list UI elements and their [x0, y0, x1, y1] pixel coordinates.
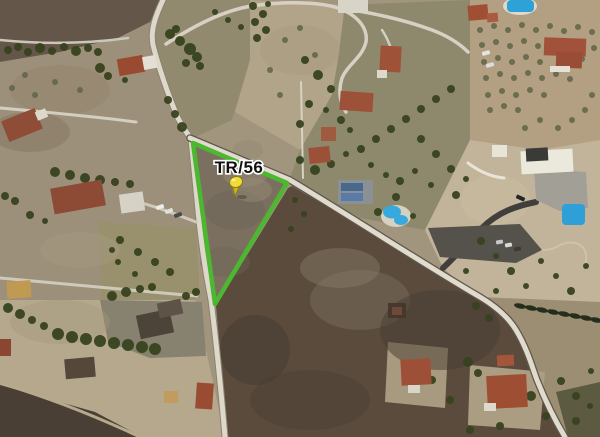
olive-tree [477, 27, 483, 33]
tree [392, 193, 400, 201]
tree [94, 335, 106, 347]
tree [115, 259, 121, 265]
tree [182, 59, 190, 67]
tree [40, 322, 48, 330]
olive-tree [497, 71, 503, 77]
olive-tree [567, 76, 573, 82]
tree [253, 34, 261, 42]
tree [583, 263, 589, 269]
building [164, 391, 178, 403]
tree [192, 52, 202, 62]
tree [357, 145, 365, 153]
tree [177, 122, 187, 132]
building [556, 52, 583, 69]
olive-tree [519, 22, 525, 28]
tree [50, 167, 60, 177]
olive-tree [509, 59, 515, 65]
tree [587, 403, 593, 409]
pool-north [507, 0, 534, 12]
tree [523, 283, 529, 289]
terrain-blotch [220, 315, 290, 385]
tree [296, 156, 304, 164]
olive-tree [491, 23, 497, 29]
tree [412, 168, 418, 174]
building [400, 358, 431, 386]
building [338, 0, 368, 13]
building [119, 191, 145, 213]
tree [463, 268, 469, 274]
tree [383, 172, 389, 178]
tree [134, 248, 142, 256]
olive-grove-northeast [470, 0, 600, 150]
tree [28, 316, 36, 324]
pushpin-highlight [232, 179, 236, 182]
building [526, 147, 549, 161]
building [550, 66, 570, 72]
tree [474, 369, 482, 377]
tree [472, 302, 480, 310]
tree [446, 396, 454, 404]
olive-tree [515, 107, 521, 113]
pushpin-shadow [237, 195, 247, 199]
tree [116, 236, 124, 244]
tree [136, 285, 144, 293]
olive-tree [561, 28, 567, 34]
olive-tree [522, 125, 528, 131]
tree [288, 226, 294, 232]
olive-tree [9, 85, 15, 91]
tree [136, 341, 148, 353]
parcel-label: TR/56 [215, 158, 264, 177]
tree [196, 62, 204, 70]
tree [149, 343, 161, 355]
olive-tree [22, 72, 28, 78]
olive-tree [501, 103, 507, 109]
olive-tree [297, 25, 303, 31]
building [379, 45, 401, 72]
tree [296, 120, 304, 128]
building [339, 91, 373, 112]
tree [26, 211, 34, 219]
tree [496, 422, 504, 430]
tree [15, 309, 25, 319]
tree [432, 95, 440, 103]
olive-tree [589, 92, 595, 98]
tree [553, 273, 559, 279]
tree [42, 218, 48, 224]
tree [225, 17, 231, 23]
tree [166, 268, 174, 276]
olive-tree [505, 27, 511, 33]
olive-tree [507, 43, 513, 49]
olive-tree [535, 43, 541, 49]
olive-tree [547, 23, 553, 29]
tree [84, 44, 92, 52]
tree [94, 48, 102, 56]
tree [466, 426, 474, 434]
tree [417, 135, 425, 143]
tree [107, 291, 117, 301]
building [341, 183, 363, 191]
tree [80, 333, 92, 345]
tree [132, 271, 138, 277]
terrain-blotch [300, 248, 380, 288]
tree [14, 43, 22, 51]
tree [71, 46, 81, 56]
tree [526, 391, 536, 401]
satellite-imagery: TR/56 [0, 0, 600, 437]
tree [567, 287, 575, 295]
tree [507, 267, 515, 275]
building [467, 4, 488, 21]
building [64, 357, 96, 380]
tree [493, 253, 499, 259]
terrain-blotch [260, 25, 340, 75]
building [497, 355, 515, 367]
tree [4, 46, 12, 54]
tree [238, 24, 244, 30]
tree [310, 165, 320, 175]
tree [557, 377, 565, 385]
olive-tree [77, 87, 83, 93]
tree [151, 258, 159, 266]
tree [48, 47, 56, 55]
tree [463, 357, 473, 367]
tree [417, 105, 425, 113]
olive-tree [555, 125, 561, 131]
building [341, 193, 363, 201]
olive-tree [493, 39, 499, 45]
olive-tree [521, 38, 527, 44]
olive-tree [479, 42, 485, 48]
tree [192, 288, 200, 296]
olive-tree [32, 92, 38, 98]
building [321, 127, 336, 141]
tree [108, 337, 120, 349]
olive-tree [485, 92, 491, 98]
parking-lot [428, 224, 542, 263]
tree [588, 368, 594, 374]
olive-tree [52, 79, 58, 85]
tree [447, 85, 455, 93]
tree [452, 191, 460, 199]
tree [292, 197, 298, 203]
olive-tree [267, 67, 273, 73]
building [6, 280, 31, 299]
tree [52, 328, 64, 340]
tree [182, 292, 190, 300]
building [487, 13, 499, 23]
building [195, 382, 214, 409]
tree [477, 237, 485, 245]
tree [148, 283, 156, 291]
tree [572, 392, 580, 400]
olive-tree [282, 37, 288, 43]
tree [337, 116, 345, 124]
tree [463, 176, 469, 182]
olive-tree [312, 52, 318, 58]
olive-tree [591, 45, 597, 51]
tree [301, 56, 309, 64]
tree [428, 182, 434, 188]
tree [542, 412, 550, 420]
tree [1, 192, 9, 200]
olive-tree [483, 75, 489, 81]
terrain-blotch [40, 232, 120, 268]
olive-tree [511, 75, 517, 81]
building [308, 146, 331, 164]
tree [251, 18, 259, 26]
tree [122, 77, 128, 83]
tree [126, 180, 134, 188]
olive-tree [277, 92, 283, 98]
tree [262, 26, 270, 34]
tree [111, 178, 119, 186]
building [392, 307, 402, 315]
tree [447, 165, 455, 173]
building [408, 385, 420, 393]
tree [11, 197, 19, 205]
tree [60, 43, 68, 51]
tree [368, 162, 374, 168]
tree [374, 208, 382, 216]
tree [343, 151, 349, 157]
tree [538, 258, 544, 264]
tree [485, 314, 493, 322]
olive-tree [537, 59, 543, 65]
building [142, 55, 157, 70]
tree [301, 211, 307, 217]
tree [66, 331, 78, 343]
tree [305, 100, 313, 108]
olive-tree [525, 70, 531, 76]
tree [249, 2, 257, 10]
tree [323, 107, 329, 113]
tree [372, 135, 380, 143]
tree [121, 287, 131, 297]
olive-tree [533, 27, 539, 33]
tree [171, 110, 179, 118]
olive-tree [487, 107, 493, 113]
tree [493, 288, 499, 294]
tree [172, 25, 180, 33]
tree [347, 127, 353, 133]
olive-tree [589, 29, 595, 35]
tree [402, 115, 410, 123]
building [377, 70, 387, 78]
olive-tree [575, 24, 581, 30]
tree [410, 213, 416, 219]
tree [3, 303, 13, 313]
olive-tree [541, 92, 547, 98]
tree [313, 70, 323, 80]
satellite-map-view[interactable]: TR/56 [0, 0, 600, 437]
olive-tree [513, 92, 519, 98]
tree [175, 36, 185, 46]
building [484, 403, 496, 411]
tree [396, 177, 404, 185]
building [0, 339, 11, 356]
olive-tree [537, 117, 543, 123]
tree [265, 1, 271, 7]
pool-kidney [394, 215, 408, 225]
olive-tree [582, 107, 588, 113]
tree [432, 150, 440, 158]
tree [212, 9, 218, 15]
tree [387, 125, 395, 133]
olive-tree [527, 87, 533, 93]
tree [65, 170, 75, 180]
tree [572, 417, 580, 425]
olive-tree [495, 55, 501, 61]
tree [80, 173, 90, 183]
olive-tree [523, 54, 529, 60]
olive-tree [569, 117, 575, 123]
tree [104, 72, 112, 80]
tree [259, 10, 267, 18]
tree [109, 247, 115, 253]
tree [122, 339, 134, 351]
tree [24, 48, 32, 56]
building [492, 145, 507, 157]
pool-resort [562, 204, 585, 225]
olive-tree [499, 88, 505, 94]
tree [164, 96, 172, 104]
tree [327, 85, 335, 93]
olive-tree [481, 59, 487, 65]
tree [35, 43, 45, 53]
tree [95, 63, 105, 73]
olive-tree [539, 75, 545, 81]
